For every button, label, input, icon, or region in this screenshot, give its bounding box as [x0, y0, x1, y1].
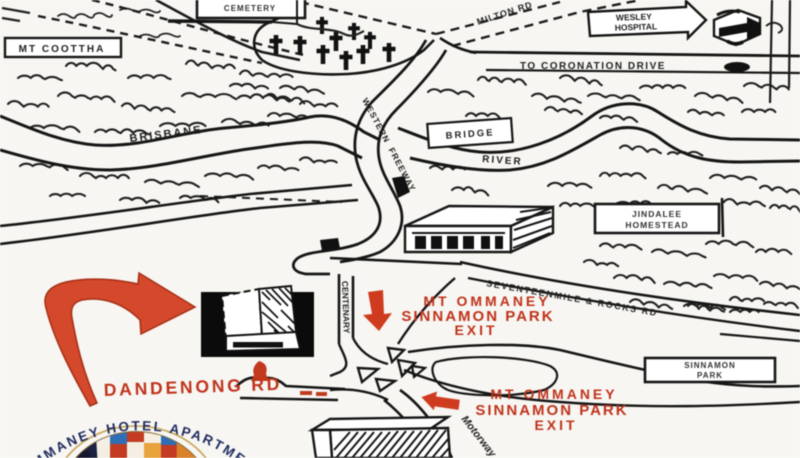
svg-text:CENTENARY: CENTENARY: [340, 281, 352, 334]
svg-text:PARK: PARK: [697, 371, 723, 380]
svg-text:MT OMMANEY: MT OMMANEY: [490, 386, 617, 402]
svg-text:SINNAMON: SINNAMON: [684, 361, 736, 370]
svg-text:HOSPITAL: HOSPITAL: [615, 21, 658, 32]
svg-text:CEMETERY: CEMETERY: [224, 4, 276, 13]
svg-text:HOMESTEAD: HOMESTEAD: [625, 220, 688, 230]
svg-text:TO CORONATION DRIVE: TO CORONATION DRIVE: [520, 61, 666, 72]
svg-text:MT OMMANEY: MT OMMANEY: [423, 293, 550, 309]
svg-text:MT COOTTHA: MT COOTTHA: [19, 44, 106, 55]
svg-text:EXIT: EXIT: [534, 417, 577, 433]
svg-text:JINDALEE: JINDALEE: [632, 209, 682, 219]
svg-text:EXIT: EXIT: [454, 322, 497, 338]
